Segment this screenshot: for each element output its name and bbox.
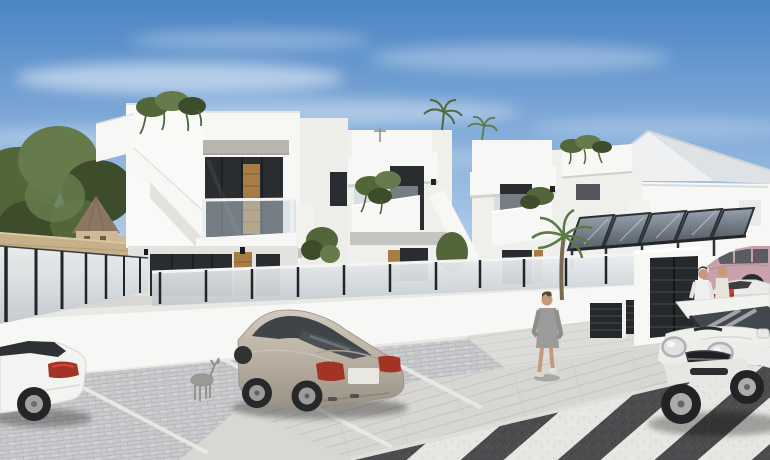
architectural-render: New-build white Mediterranean townhouses… [0,0,770,460]
scene-canvas [0,0,770,460]
white-coupe [0,341,92,427]
